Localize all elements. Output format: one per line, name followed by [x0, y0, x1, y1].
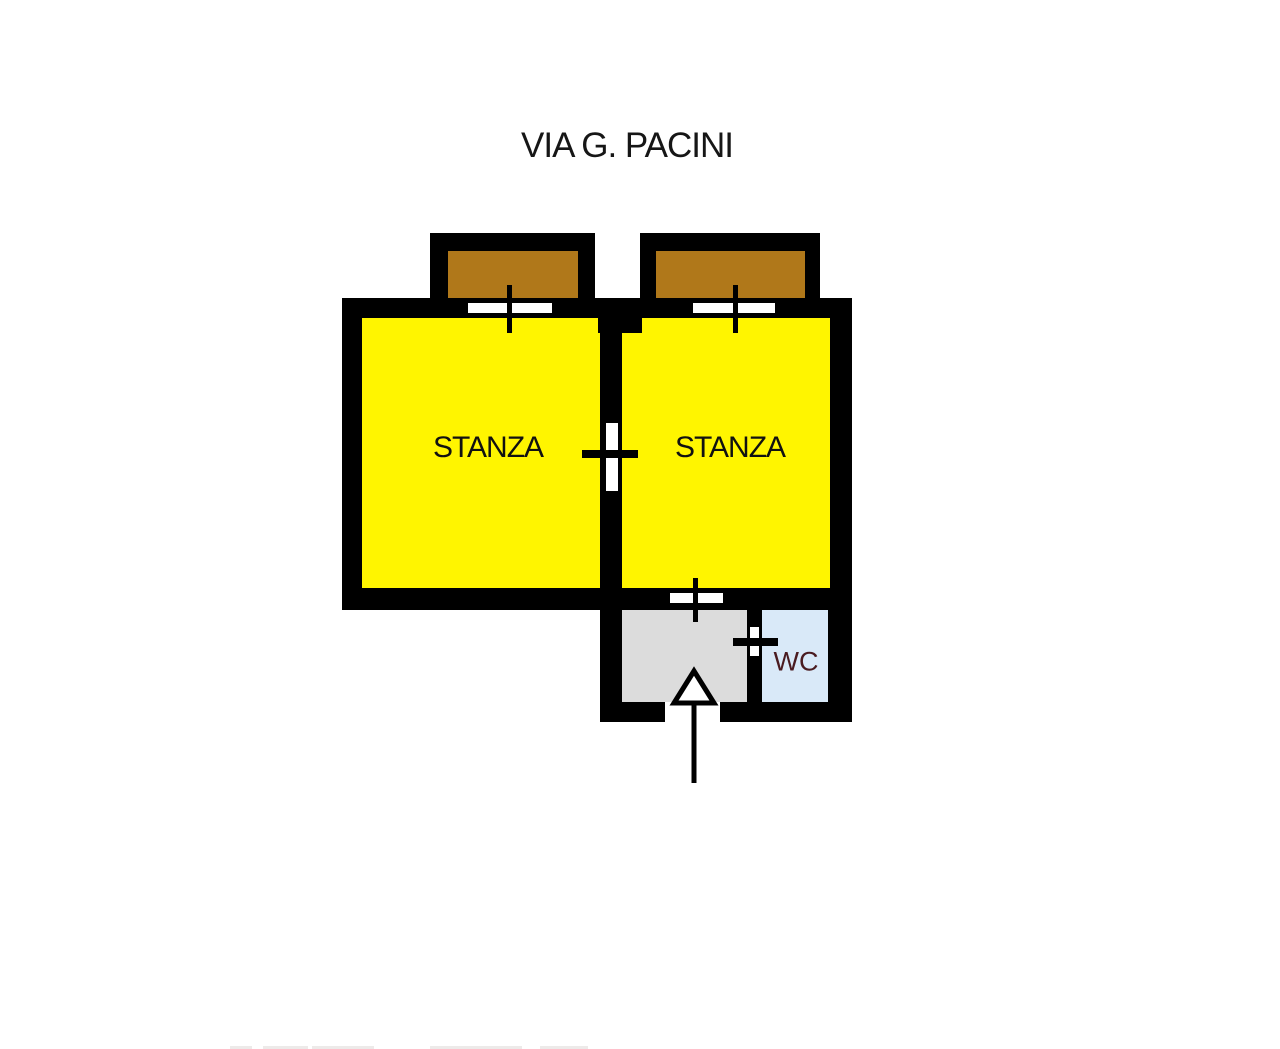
window-left-symbol — [507, 285, 512, 333]
window-right-symbol — [733, 285, 738, 333]
wall-junction-knob — [598, 315, 642, 333]
door-middle-symbol — [582, 450, 638, 458]
entrance-arrow-icon — [660, 663, 728, 788]
page-title: VIA G. PACINI — [521, 126, 733, 166]
door-wc-symbol — [733, 638, 778, 646]
floorplan: VIA G. PACINI STANZA STANZA WC — [0, 0, 1280, 1049]
balcony-left-floor — [448, 251, 578, 298]
wc-label: WC — [774, 647, 819, 678]
door-hall-symbol — [693, 578, 698, 622]
stanza-left-label: STANZA — [433, 431, 543, 465]
stanza-right-label: STANZA — [675, 431, 785, 465]
balcony-right-floor — [656, 251, 805, 298]
